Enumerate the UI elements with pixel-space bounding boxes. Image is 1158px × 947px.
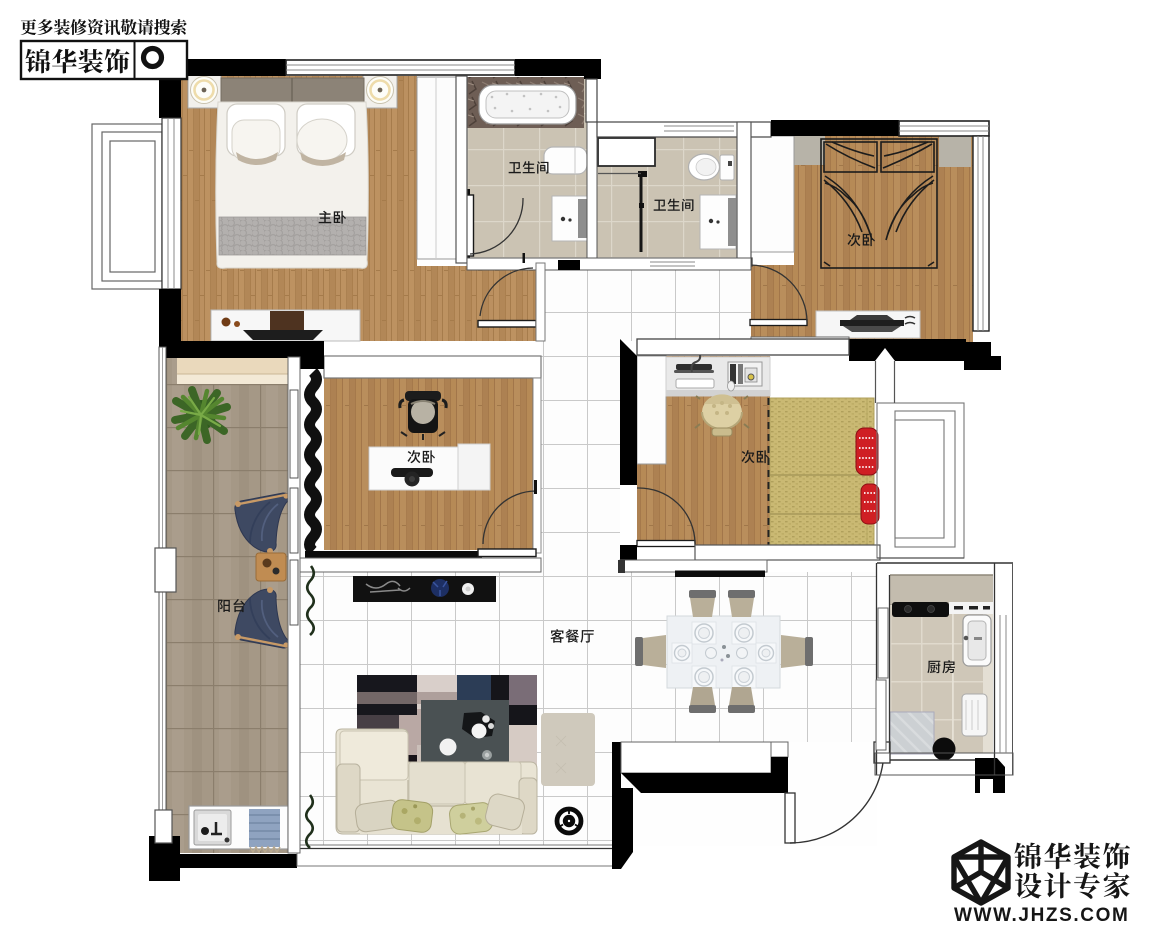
svg-text:WWW.JHZS.COM: WWW.JHZS.COM (954, 905, 1129, 926)
